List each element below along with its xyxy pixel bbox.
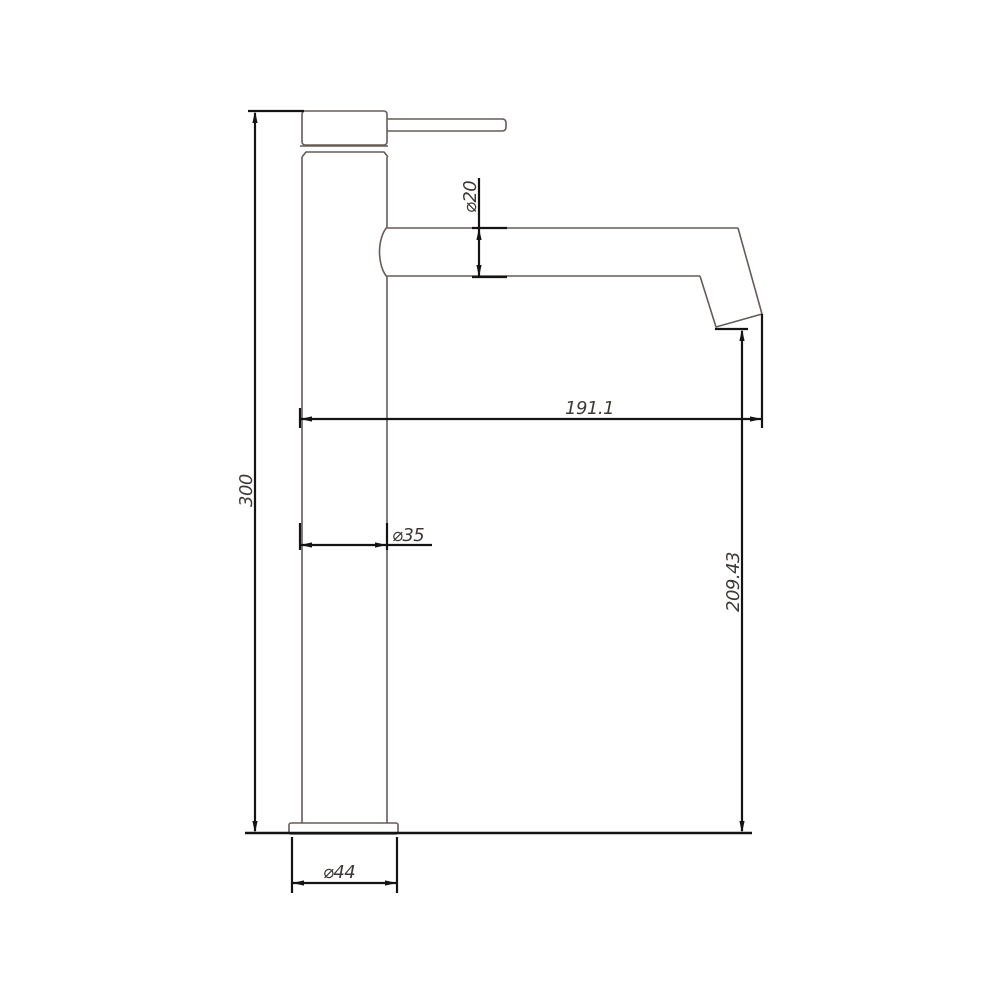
dim-label-spout-diameter: ⌀20: [460, 181, 481, 213]
arrow-300-bottom: [252, 821, 257, 833]
dimension-labels: 300 191.1 209.43 ⌀20 ⌀35 ⌀44: [236, 181, 744, 883]
dim-label-base-diameter: ⌀44: [323, 862, 355, 883]
handle-lever: [387, 119, 506, 131]
faucet-cap: [302, 111, 387, 145]
dim-overall-height-lines: [248, 111, 304, 831]
arrow-300-top: [252, 111, 257, 123]
faucet-body: [302, 157, 387, 823]
spout-nozzle: [700, 228, 762, 327]
arrow-d20-top: [476, 228, 481, 240]
arrow-d35-right: [375, 542, 387, 547]
faucet-dimension-drawing: 300 191.1 209.43 ⌀20 ⌀35 ⌀44: [0, 0, 1000, 1000]
spout-junction-curve: [380, 227, 388, 277]
faucet-outline: [289, 111, 762, 834]
dim-label-overall-height: 300: [236, 474, 257, 507]
arrow-209-bottom: [739, 821, 744, 833]
spout-tube: [386, 228, 738, 276]
dim-label-body-diameter: ⌀35: [392, 525, 424, 546]
dim-spout-reach-lines: [300, 314, 762, 428]
dimension-arrowheads: [252, 111, 762, 886]
dim-label-spout-reach: 191.1: [565, 398, 614, 419]
arrow-191-right: [750, 416, 762, 421]
dim-label-outlet-height: 209.43: [723, 552, 744, 612]
arrow-d44-right: [385, 880, 397, 885]
arrow-209-top: [739, 329, 744, 341]
faucet-collar: [300, 146, 388, 157]
arrow-d44-left: [292, 880, 304, 885]
drawing-canvas: 300 191.1 209.43 ⌀20 ⌀35 ⌀44: [0, 0, 1000, 1000]
